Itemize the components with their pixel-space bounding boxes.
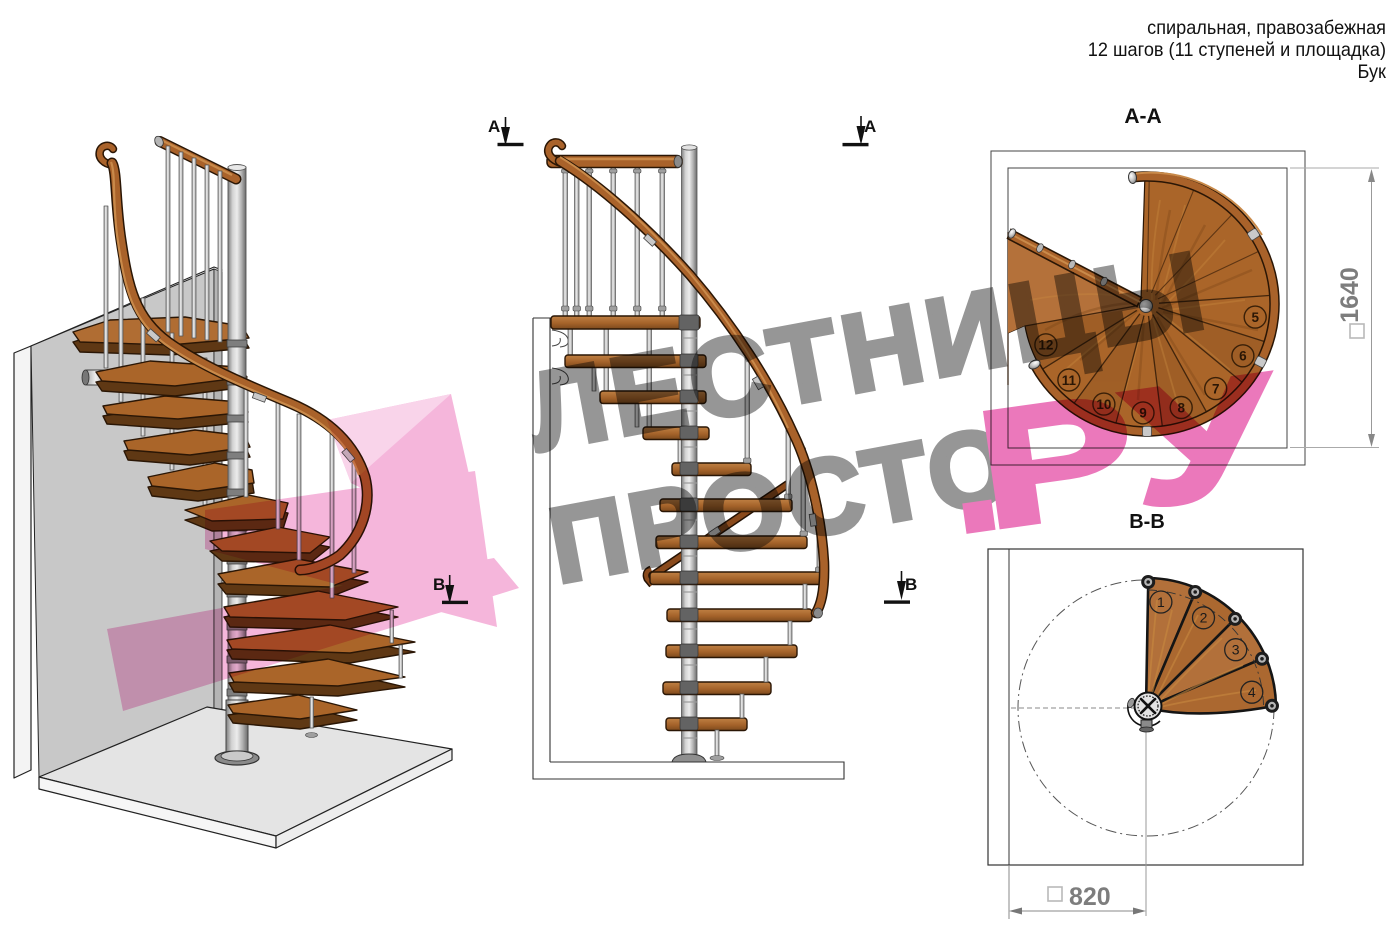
svg-text:А: А	[488, 117, 500, 136]
svg-text:А: А	[864, 117, 876, 136]
svg-text:12 шагов (11 ступеней и площад: 12 шагов (11 ступеней и площадка)	[1088, 38, 1386, 60]
svg-text:5: 5	[1251, 310, 1259, 325]
svg-text:Бук: Бук	[1358, 60, 1387, 82]
svg-text:2: 2	[1200, 610, 1208, 626]
svg-text:4: 4	[1248, 684, 1256, 700]
svg-text:3: 3	[1232, 642, 1240, 658]
svg-text:А-А: А-А	[1124, 105, 1161, 128]
svg-text:спиральная, правозабежная: спиральная, правозабежная	[1147, 16, 1386, 38]
svg-text:1640: 1640	[1336, 267, 1364, 323]
svg-text:820: 820	[1069, 883, 1111, 911]
svg-text:В: В	[433, 575, 445, 594]
svg-text:В: В	[905, 575, 917, 594]
svg-text:1: 1	[1157, 594, 1165, 610]
